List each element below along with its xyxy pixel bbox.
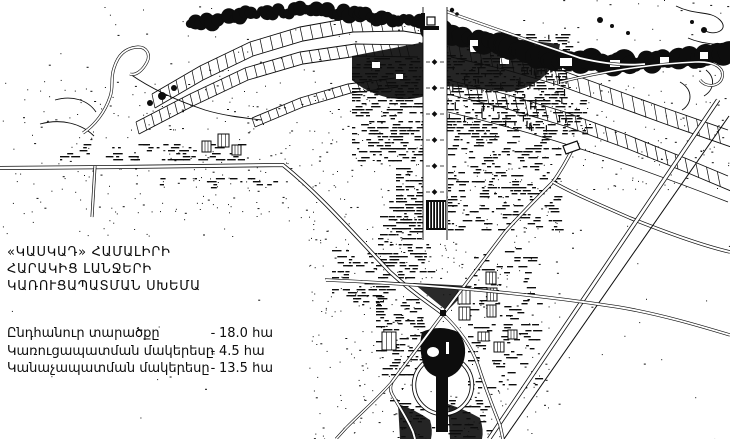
area-legend: Ընդհանուր տարածքը-18.0 հա Կառուցապատման … (7, 325, 273, 378)
legend-separator: - (207, 343, 219, 361)
legend-row-green-area: Կանաչապատման մակերեսը-13.5 հա (7, 360, 273, 378)
legend-value: 18.0 հա (219, 325, 273, 343)
title-line-3: ԿԱՌՈՒՑԱՊԱՏՄԱՆ ՍԽԵՄԱ (7, 278, 273, 295)
legend-row-built-area: Կառուցապատման մակերեսը-4.5 հա (7, 343, 273, 361)
legend-separator: - (207, 360, 219, 378)
legend-label: Կառուցապատման մակերեսը (7, 343, 207, 361)
legend-label: Ընդհանուր տարածքը (7, 325, 207, 343)
page-title: «ԿԱՍԿԱԴ» ՀԱՄԱԼԻՐԻ ՀԱՐԱԿԻՑ ԼԱՆՋԵՐԻ ԿԱՌՈՒՑ… (7, 244, 273, 295)
scanned-site-plan-page: «ԿԱՍԿԱԴ» ՀԱՄԱԼԻՐԻ ՀԱՐԱԿԻՑ ԼԱՆՋԵՐԻ ԿԱՌՈՒՑ… (0, 0, 730, 439)
title-line-1: «ԿԱՍԿԱԴ» ՀԱՄԱԼԻՐԻ (7, 244, 273, 261)
legend-value: 13.5 հա (219, 360, 273, 378)
legend-value: 4.5 հա (219, 343, 265, 361)
legend-row-total-area: Ընդհանուր տարածքը-18.0 հա (7, 325, 273, 343)
map-caption-block: «ԿԱՍԿԱԴ» ՀԱՄԱԼԻՐԻ ՀԱՐԱԿԻՑ ԼԱՆՋԵՐԻ ԿԱՌՈՒՑ… (7, 244, 273, 378)
legend-label: Կանաչապատման մակերեսը (7, 360, 207, 378)
title-line-2: ՀԱՐԱԿԻՑ ԼԱՆՋԵՐԻ (7, 261, 273, 278)
legend-separator: - (207, 325, 219, 343)
